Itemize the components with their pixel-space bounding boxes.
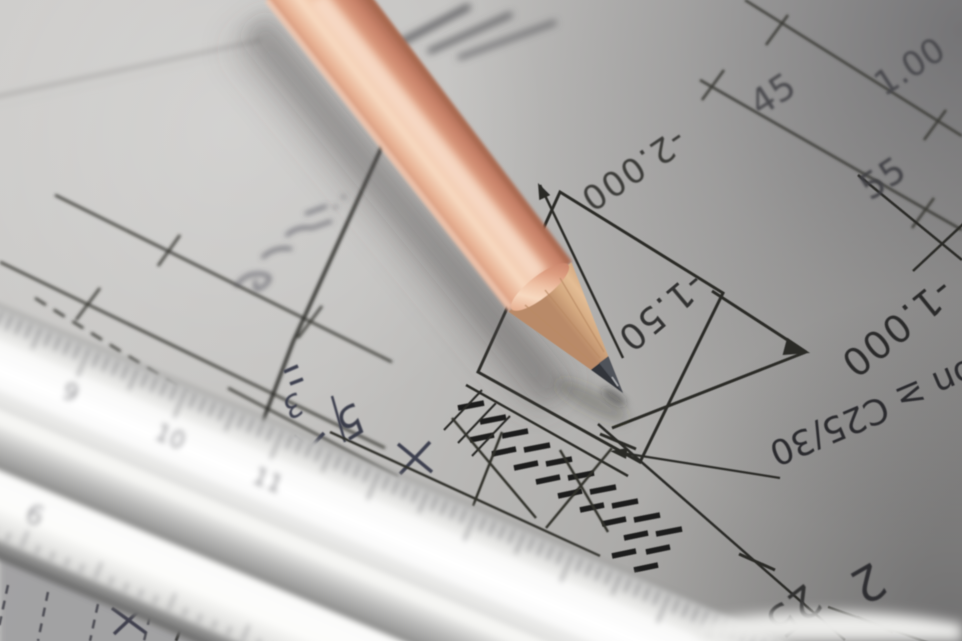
photo-canvas: -2.000 -1.50 -1.000 on ≥ C25/30 25 2 1.0…	[0, 0, 962, 641]
photo-architectural-drawing: -2.000 -1.50 -1.000 on ≥ C25/30 25 2 1.0…	[0, 0, 962, 641]
